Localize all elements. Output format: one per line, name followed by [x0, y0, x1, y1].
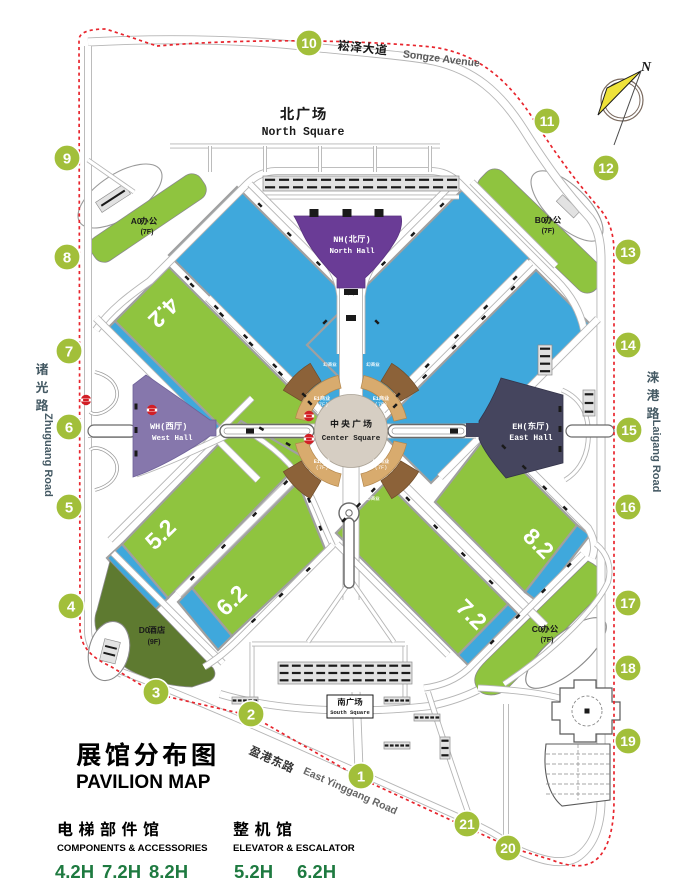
svg-text:4: 4	[67, 598, 76, 615]
svg-text:9: 9	[63, 150, 71, 167]
svg-text:19: 19	[620, 733, 636, 749]
svg-text:N: N	[640, 60, 652, 75]
svg-text:14: 14	[620, 337, 636, 353]
svg-text:5.2H: 5.2H	[234, 861, 273, 882]
svg-text:Laigang Road: Laigang Road	[650, 420, 662, 493]
svg-text:North Hall: North Hall	[329, 248, 375, 256]
svg-text:8: 8	[63, 249, 71, 266]
svg-text:COMPONENTS & ACCESSORIES: COMPONENTS & ACCESSORIES	[57, 843, 208, 854]
svg-text:(7F): (7F)	[542, 228, 555, 235]
svg-text:8.2H: 8.2H	[149, 861, 188, 882]
svg-text:2: 2	[247, 706, 255, 723]
svg-text:Zhuguang Road: Zhuguang Road	[42, 413, 54, 497]
svg-text:(7F): (7F)	[375, 465, 387, 471]
svg-text:South Square: South Square	[330, 709, 370, 716]
svg-text:6.2H: 6.2H	[297, 861, 336, 882]
svg-text:10: 10	[301, 35, 317, 51]
svg-text:NH(: NH(	[333, 235, 348, 245]
svg-text:(7F): (7F)	[141, 229, 154, 236]
svg-text:North Square: North Square	[262, 126, 345, 139]
svg-text:D0: D0	[139, 625, 150, 635]
svg-text:4.2H: 4.2H	[55, 861, 94, 882]
svg-text:A0: A0	[131, 216, 142, 226]
svg-text:1: 1	[357, 768, 365, 785]
svg-text:West Hall: West Hall	[152, 435, 193, 443]
svg-text:WH(: WH(	[150, 422, 165, 432]
svg-text:Center Square: Center Square	[322, 435, 381, 443]
svg-text:21: 21	[459, 816, 475, 832]
svg-text:EH(: EH(	[512, 422, 527, 432]
svg-text:(7F): (7F)	[375, 402, 387, 408]
svg-text:): )	[366, 235, 371, 245]
svg-text:17: 17	[620, 595, 636, 611]
svg-text:5: 5	[65, 499, 73, 516]
svg-text:7.2H: 7.2H	[102, 861, 141, 882]
svg-text:(7F): (7F)	[316, 402, 328, 408]
svg-text:(7F): (7F)	[316, 465, 328, 471]
svg-text:C0: C0	[532, 624, 543, 634]
svg-text:11: 11	[540, 113, 555, 129]
svg-text:(7F): (7F)	[541, 637, 554, 644]
svg-text:ELEVATOR & ESCALATOR: ELEVATOR & ESCALATOR	[233, 843, 355, 854]
svg-text:3: 3	[152, 684, 160, 701]
svg-text:12: 12	[598, 160, 614, 176]
svg-text:B0: B0	[535, 215, 546, 225]
svg-text:16: 16	[620, 499, 636, 515]
svg-text:7: 7	[65, 343, 73, 360]
svg-text:15: 15	[621, 422, 637, 438]
svg-text:13: 13	[620, 244, 636, 260]
svg-text:(9F): (9F)	[148, 639, 161, 646]
svg-text:18: 18	[620, 660, 636, 676]
svg-text:): )	[545, 422, 550, 432]
svg-text:): )	[182, 422, 187, 432]
svg-text:20: 20	[500, 840, 516, 856]
svg-text:6: 6	[65, 419, 73, 436]
svg-text:East Hall: East Hall	[509, 434, 552, 443]
svg-text:PAVILION MAP: PAVILION MAP	[76, 772, 211, 793]
